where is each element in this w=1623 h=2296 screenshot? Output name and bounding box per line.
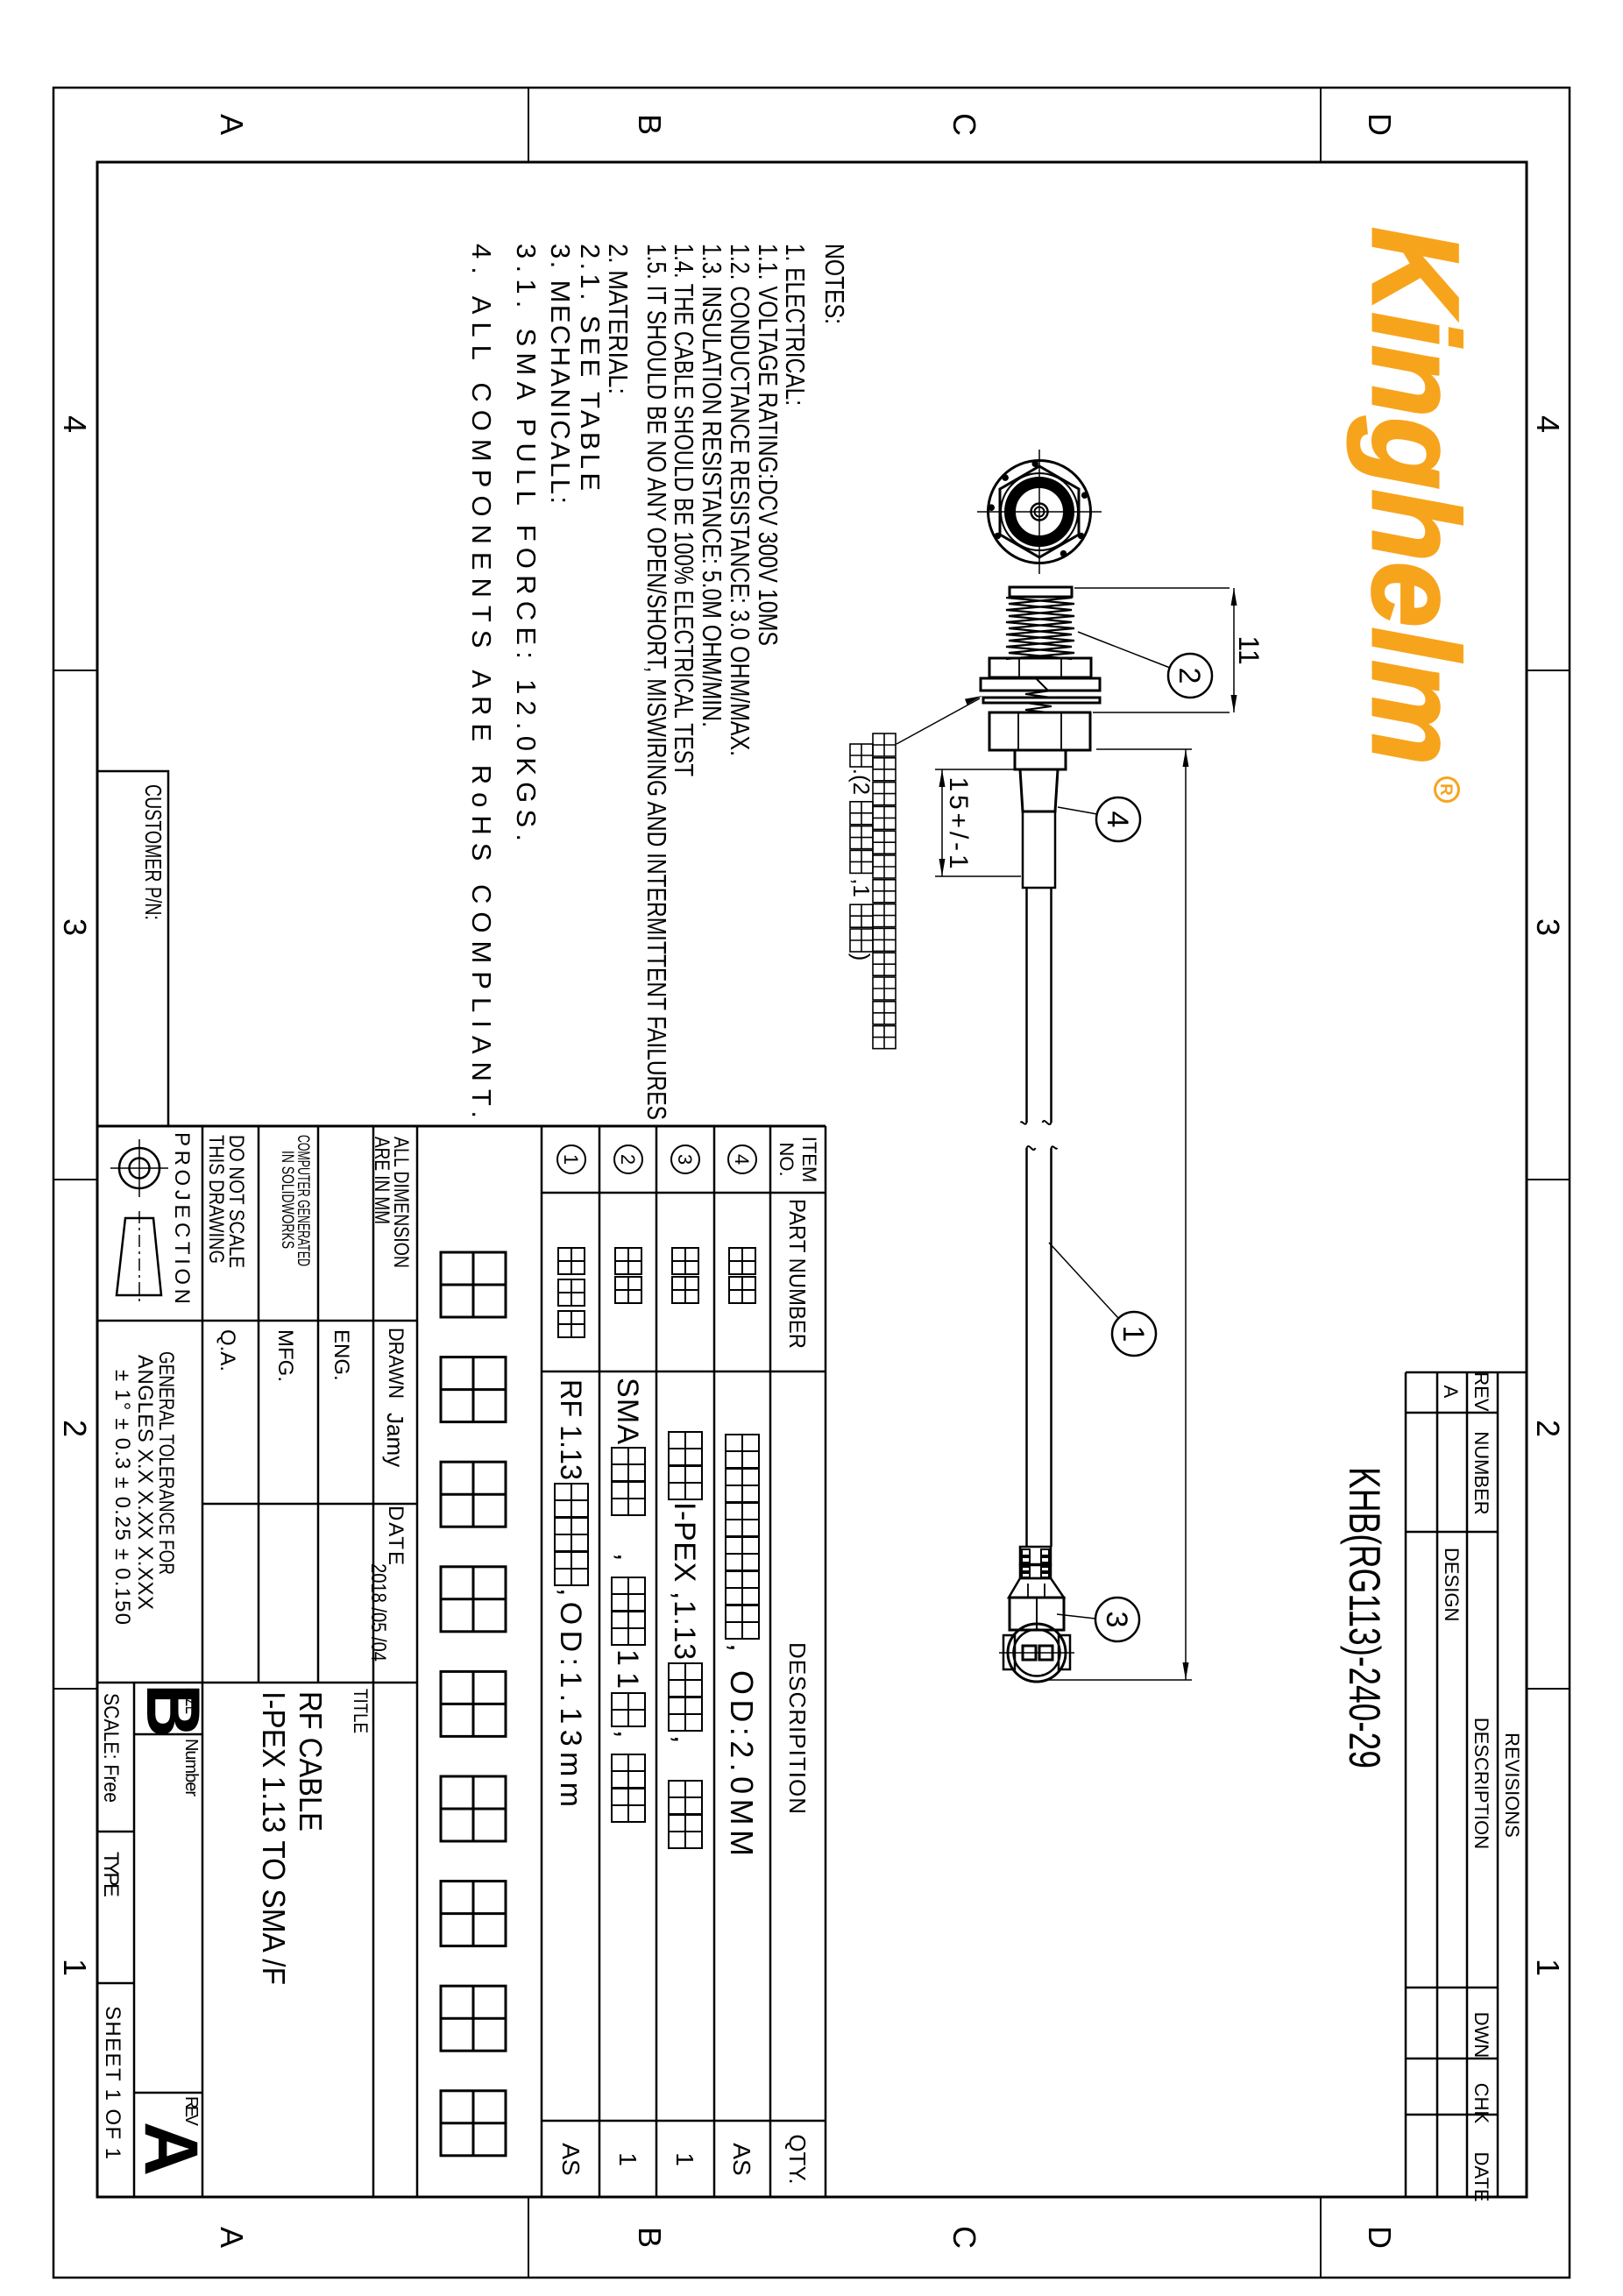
svg-text:4: 4 <box>1530 415 1566 433</box>
svg-text:ANGLES X.X X.XX X.XXX: ANGLES X.X X.XX X.XXX <box>133 1355 157 1610</box>
svg-text:AS: AS <box>728 2143 755 2175</box>
svg-text:1: 1 <box>560 1154 582 1165</box>
svg-text:± 1° ± 0.3 ± 0.25 ± 0.150: ± 1° ± 0.3 ± 0.25 ± 0.150 <box>110 1370 134 1625</box>
svg-text:1: 1 <box>57 1959 93 1976</box>
svg-text:,: , <box>611 1553 644 1561</box>
svg-text:MFG.: MFG. <box>273 1329 297 1382</box>
svg-text:DESCRIPTION: DESCRIPTION <box>1471 1718 1492 1849</box>
svg-text:TITLE: TITLE <box>350 1689 372 1733</box>
svg-text:,: , <box>668 1735 701 1743</box>
svg-text:1: 1 <box>614 2152 641 2166</box>
svg-text:PART NUMBER: PART NUMBER <box>784 1199 811 1349</box>
svg-text:2: 2 <box>1530 1420 1566 1437</box>
svg-text:4: 4 <box>57 415 93 433</box>
svg-text:,OD:1.13mm: ,OD:1.13mm <box>554 1588 587 1807</box>
svg-text:A: A <box>129 2122 213 2176</box>
svg-text:3: 3 <box>674 1154 696 1165</box>
svg-text:1: 1 <box>1530 1959 1566 1976</box>
svg-text:SCALE: Free: SCALE: Free <box>99 1693 123 1803</box>
svg-text:1.3. INSULATION RESISTANCE: 5: 1.3. INSULATION RESISTANCE: 5.0M OHM/MIN… <box>697 244 727 727</box>
svg-text:.(2: .(2 <box>848 769 875 795</box>
svg-text:C: C <box>946 2226 982 2249</box>
svg-text:DATE: DATE <box>1471 2151 1492 2201</box>
svg-text:CHK: CHK <box>1471 2083 1492 2124</box>
svg-text:D: D <box>1362 113 1398 136</box>
svg-text:COMPUTER GENERATED: COMPUTER GENERATED <box>294 1135 312 1266</box>
svg-text:RF 1.13: RF 1.13 <box>554 1379 587 1480</box>
svg-text:I-PEX ,1.13: I-PEX ,1.13 <box>668 1502 701 1660</box>
svg-text:3.1. SMA PULL FORCE: 12.0KGS.: 3.1. SMA PULL FORCE: 12.0KGS. <box>511 244 542 841</box>
svg-text:3. MECHANICALL:: 3. MECHANICALL: <box>545 244 576 504</box>
svg-text:2018 /05 /04: 2018 /05 /04 <box>366 1563 390 1662</box>
svg-text:Q.A.: Q.A. <box>216 1329 239 1371</box>
svg-text:3: 3 <box>1530 918 1566 936</box>
svg-text:4. ALL COMPONENTS ARE RoHS CO: 4. ALL COMPONENTS ARE RoHS COMPLIANT. <box>466 244 497 1118</box>
svg-text:CUSTOMER P/N:: CUSTOMER P/N: <box>140 784 167 920</box>
svg-text:15+/-1: 15+/-1 <box>944 777 973 869</box>
svg-text:,: , <box>611 1730 644 1738</box>
svg-text:B: B <box>632 114 668 135</box>
svg-text:NUMBER: NUMBER <box>1471 1431 1492 1514</box>
svg-text:DWN: DWN <box>1471 2012 1492 2059</box>
svg-text:SMA: SMA <box>611 1378 644 1444</box>
svg-text:A: A <box>214 2227 250 2248</box>
svg-text:Number: Number <box>181 1739 201 1796</box>
svg-text:4: 4 <box>731 1154 753 1165</box>
svg-text:GENERAL TOLERANCE FOR: GENERAL TOLERANCE FOR <box>154 1351 178 1575</box>
svg-text:3: 3 <box>57 918 93 936</box>
svg-text:RF CABLE: RF CABLE <box>293 1691 329 1832</box>
svg-text:DESIGN: DESIGN <box>1441 1548 1463 1621</box>
svg-text:4: 4 <box>1101 811 1134 828</box>
svg-text:A: A <box>214 114 250 135</box>
svg-text:SHEET 1 OF 1: SHEET 1 OF 1 <box>101 2006 124 2159</box>
svg-text:2. MATERIAL:: 2. MATERIAL: <box>603 244 634 394</box>
svg-text:QTY.: QTY. <box>784 2134 811 2184</box>
svg-text:1. ELECTRICAL:: 1. ELECTRICAL: <box>780 244 811 406</box>
svg-text:2: 2 <box>1173 668 1206 684</box>
svg-text:C: C <box>946 113 982 136</box>
svg-text:1.1. VOLTAGE RATING:DCV 300V: 1.1. VOLTAGE RATING:DCV 300V 10MS <box>753 244 783 646</box>
svg-text:D: D <box>1362 2226 1398 2249</box>
svg-text:THIS DRAWING: THIS DRAWING <box>204 1135 228 1264</box>
svg-text:KHB(RG113)-240-29: KHB(RG113)-240-29 <box>1340 1467 1389 1768</box>
svg-text:3: 3 <box>1100 1612 1133 1628</box>
svg-text:DRAWN: DRAWN <box>384 1328 408 1399</box>
svg-text:REV: REV <box>1471 1371 1492 1412</box>
svg-text:1: 1 <box>671 2152 698 2166</box>
svg-text:I-PEX 1.13 TO SMA /F: I-PEX 1.13 TO SMA /F <box>256 1691 292 1985</box>
svg-text:1.4. THE CABLE SHOULD BE 100%: 1.4. THE CABLE SHOULD BE 100% ELECTRICAL… <box>669 244 699 776</box>
svg-text:): ) <box>848 953 875 961</box>
svg-text:11: 11 <box>1233 635 1265 664</box>
svg-text:1.5. IT SHOULD BE NO ANY OPEN: 1.5. IT SHOULD BE NO ANY OPEN/SHORT, MIS… <box>641 244 672 1120</box>
svg-text:DESCRIPITION: DESCRIPITION <box>784 1642 811 1814</box>
svg-text:ARE IN MM: ARE IN MM <box>370 1137 393 1224</box>
svg-text:NOTES:: NOTES: <box>819 244 850 324</box>
svg-text:1: 1 <box>1116 1326 1150 1343</box>
svg-text:TYPE: TYPE <box>99 1852 123 1897</box>
svg-text:PROJECTION: PROJECTION <box>170 1132 194 1304</box>
svg-text:ENG.: ENG. <box>330 1329 353 1381</box>
svg-text:Jamy: Jamy <box>382 1413 408 1467</box>
svg-text:B: B <box>131 1683 215 1738</box>
svg-text:2: 2 <box>617 1154 639 1165</box>
svg-text:ITEM: ITEM <box>798 1137 820 1183</box>
svg-text:R: R <box>1436 783 1455 796</box>
svg-text:REVISIONS: REVISIONS <box>1501 1733 1523 1838</box>
svg-text:DATE: DATE <box>384 1506 408 1565</box>
svg-text:B: B <box>632 2227 668 2248</box>
svg-text:Kinghelm: Kinghelm <box>1347 227 1485 765</box>
svg-text:NO.: NO. <box>776 1142 797 1176</box>
svg-text:A: A <box>1440 1385 1462 1399</box>
svg-text:11: 11 <box>611 1649 644 1689</box>
svg-text:DO NOT SCALE: DO NOT SCALE <box>224 1135 248 1268</box>
svg-text:2.1. SEE TABLE: 2.1. SEE TABLE <box>575 244 606 491</box>
svg-text:2: 2 <box>57 1420 93 1437</box>
svg-text:AS: AS <box>557 2143 585 2175</box>
svg-text:,1: ,1 <box>848 878 875 897</box>
svg-text:, OD:2.0MM: , OD:2.0MM <box>724 1643 760 1856</box>
svg-text:1.2. CONDUCTANCE RESISTANCE:: 1.2. CONDUCTANCE RESISTANCE: 3.0 OHM/MAX… <box>725 244 755 756</box>
svg-text:IN SOLIDWORKS: IN SOLIDWORKS <box>278 1151 296 1249</box>
